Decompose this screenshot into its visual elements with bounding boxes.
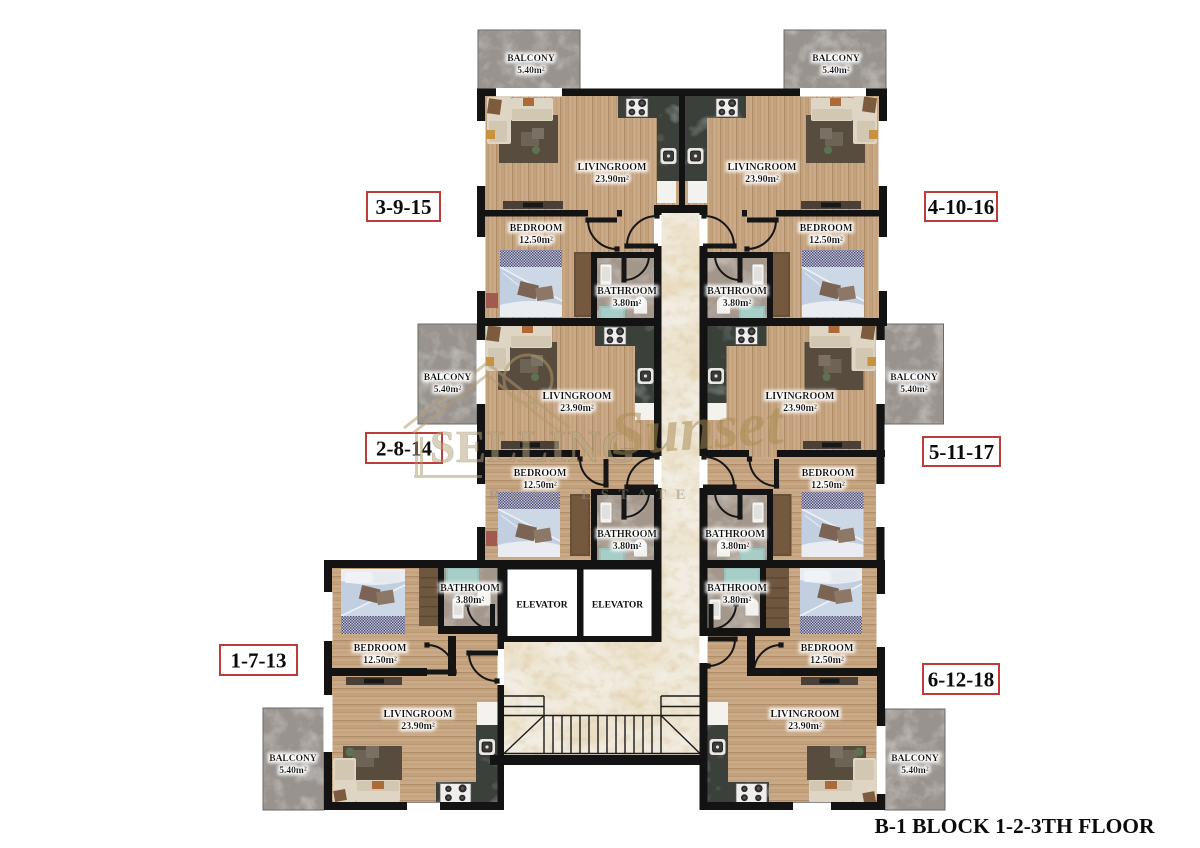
svg-text:5-11-17: 5-11-17: [929, 440, 994, 464]
svg-text:BATHROOM: BATHROOM: [597, 286, 657, 297]
svg-text:3.80m²: 3.80m²: [613, 298, 642, 309]
svg-text:ELEVATOR: ELEVATOR: [516, 601, 567, 611]
svg-text:5.40m²: 5.40m²: [901, 766, 929, 776]
svg-text:12.50m²: 12.50m²: [810, 655, 844, 666]
svg-text:4-10-16: 4-10-16: [928, 195, 995, 219]
svg-text:12.50m²: 12.50m²: [523, 480, 557, 491]
svg-text:3.80m²: 3.80m²: [721, 541, 750, 552]
svg-text:LIVINGROOM: LIVINGROOM: [771, 709, 840, 720]
svg-text:23.90m²: 23.90m²: [401, 721, 435, 732]
svg-text:BATHROOM: BATHROOM: [705, 529, 765, 540]
svg-text:ELEVATOR: ELEVATOR: [592, 601, 643, 611]
svg-text:LIVINGROOM: LIVINGROOM: [766, 391, 835, 402]
svg-text:BATHROOM: BATHROOM: [707, 286, 767, 297]
svg-text:Sunset: Sunset: [608, 389, 786, 469]
svg-text:BALCONY: BALCONY: [891, 754, 939, 764]
svg-text:BATHROOM: BATHROOM: [597, 529, 657, 540]
svg-text:12.50m²: 12.50m²: [519, 235, 553, 246]
svg-text:23.90m²: 23.90m²: [595, 174, 629, 185]
svg-text:23.90m²: 23.90m²: [560, 403, 594, 414]
svg-text:2-8-14: 2-8-14: [376, 437, 432, 461]
svg-text:BATHROOM: BATHROOM: [440, 583, 500, 594]
svg-text:23.90m²: 23.90m²: [783, 403, 817, 414]
svg-text:1-7-13: 1-7-13: [231, 649, 287, 673]
svg-text:5.40m²: 5.40m²: [517, 66, 545, 76]
svg-text:LIVINGROOM: LIVINGROOM: [384, 709, 453, 720]
svg-text:3.80m²: 3.80m²: [456, 595, 485, 606]
svg-text:BEDROOM: BEDROOM: [514, 468, 567, 479]
svg-text:BEDROOM: BEDROOM: [802, 468, 855, 479]
svg-text:BALCONY: BALCONY: [269, 754, 317, 764]
svg-text:3.80m²: 3.80m²: [723, 595, 752, 606]
svg-text:5.40m²: 5.40m²: [900, 385, 928, 395]
svg-text:6-12-18: 6-12-18: [928, 668, 995, 692]
svg-text:3.80m²: 3.80m²: [723, 298, 752, 309]
svg-text:23.90m²: 23.90m²: [745, 174, 779, 185]
svg-text:BALCONY: BALCONY: [890, 373, 938, 383]
svg-text:5.40m²: 5.40m²: [279, 766, 307, 776]
svg-text:5.40m²: 5.40m²: [822, 66, 850, 76]
svg-text:12.50m²: 12.50m²: [811, 480, 845, 491]
svg-text:SELLING: SELLING: [430, 422, 637, 472]
svg-text:BATHROOM: BATHROOM: [707, 583, 767, 594]
svg-text:3.80m²: 3.80m²: [613, 541, 642, 552]
svg-text:23.90m²: 23.90m²: [788, 721, 822, 732]
svg-text:12.50m²: 12.50m²: [809, 235, 843, 246]
svg-text:LIVINGROOM: LIVINGROOM: [728, 162, 797, 173]
svg-text:BEDROOM: BEDROOM: [800, 223, 853, 234]
svg-text:REAL ESTATE: REAL ESTATE: [489, 487, 695, 503]
svg-text:BEDROOM: BEDROOM: [510, 223, 563, 234]
svg-text:BALCONY: BALCONY: [812, 54, 860, 64]
svg-text:BEDROOM: BEDROOM: [801, 643, 854, 654]
svg-text:LIVINGROOM: LIVINGROOM: [543, 391, 612, 402]
svg-text:BALCONY: BALCONY: [507, 54, 555, 64]
svg-text:12.50m²: 12.50m²: [363, 655, 397, 666]
svg-text:5.40m²: 5.40m²: [434, 385, 462, 395]
svg-text:B-1 BLOCK 1-2-3TH FLOOR: B-1 BLOCK 1-2-3TH FLOOR: [874, 814, 1155, 838]
svg-text:3-9-15: 3-9-15: [376, 195, 432, 219]
svg-text:LIVINGROOM: LIVINGROOM: [578, 162, 647, 173]
svg-text:BEDROOM: BEDROOM: [354, 643, 407, 654]
svg-text:BALCONY: BALCONY: [424, 373, 472, 383]
